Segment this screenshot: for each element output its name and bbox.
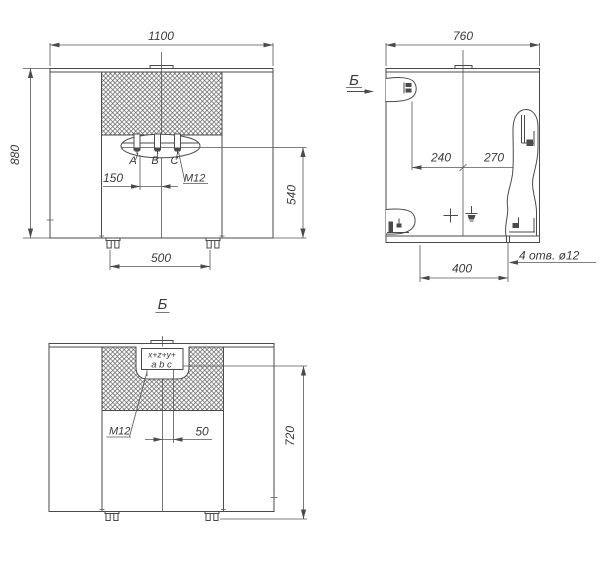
- rear-view-title-label: Б: [158, 296, 168, 313]
- front-terminal-a-label: A: [128, 155, 136, 167]
- front-dim-terminal-height-label: 540: [285, 185, 299, 205]
- side-lifting-lug-top: [386, 77, 416, 101]
- rear-terminal-marking-top: x+z+y+: [147, 350, 176, 360]
- front-dim-feet-span: 500: [110, 250, 210, 270]
- front-feet: [106, 238, 220, 248]
- side-holes-note: 4 отв. ø12: [509, 249, 597, 265]
- side-dim-left-offset-label: 240: [430, 151, 451, 165]
- technical-drawing: 1100 A B C: [0, 0, 600, 568]
- side-dim-width-label: 760: [453, 29, 473, 43]
- rear-view: Б x+z+y+ a b c M12: [49, 296, 307, 521]
- rear-view-title: Б: [156, 296, 170, 313]
- drawing-sheet: 1100 A B C: [0, 0, 600, 568]
- side-view: 760 Б 240 270: [346, 29, 596, 282]
- front-dim-terminal-height: 540: [273, 148, 307, 239]
- front-dim-width-label: 1100: [148, 29, 174, 43]
- front-view: 1100 A B C: [8, 29, 307, 270]
- side-view-direction-arrow: Б: [346, 72, 374, 94]
- front-dim-height: 880: [8, 69, 50, 239]
- rear-thread-note-label: M12: [109, 426, 130, 438]
- rear-feet: [105, 512, 219, 521]
- side-dim-holes-span-label: 400: [452, 262, 472, 276]
- side-view-arrow-label: Б: [349, 72, 359, 89]
- front-terminal-b-label: B: [151, 155, 158, 167]
- rear-lid: [49, 344, 274, 348]
- front-dim-feet-span-label: 500: [151, 251, 171, 265]
- rear-dim-offset-label: 50: [195, 425, 209, 439]
- side-holes-note-label: 4 отв. ø12: [519, 249, 580, 263]
- rear-dim-height-label: 720: [283, 426, 297, 446]
- front-dim-height-label: 880: [8, 145, 22, 165]
- front-thread-note-label: M12: [184, 173, 205, 185]
- side-dim-right-offset-label: 270: [483, 151, 504, 165]
- front-terminal-c-label: C: [171, 155, 179, 167]
- side-base-channel: [386, 236, 540, 243]
- front-dim-terminal-pitch-label: 150: [103, 171, 123, 185]
- rear-terminal-marking-bottom: a b c: [151, 360, 172, 371]
